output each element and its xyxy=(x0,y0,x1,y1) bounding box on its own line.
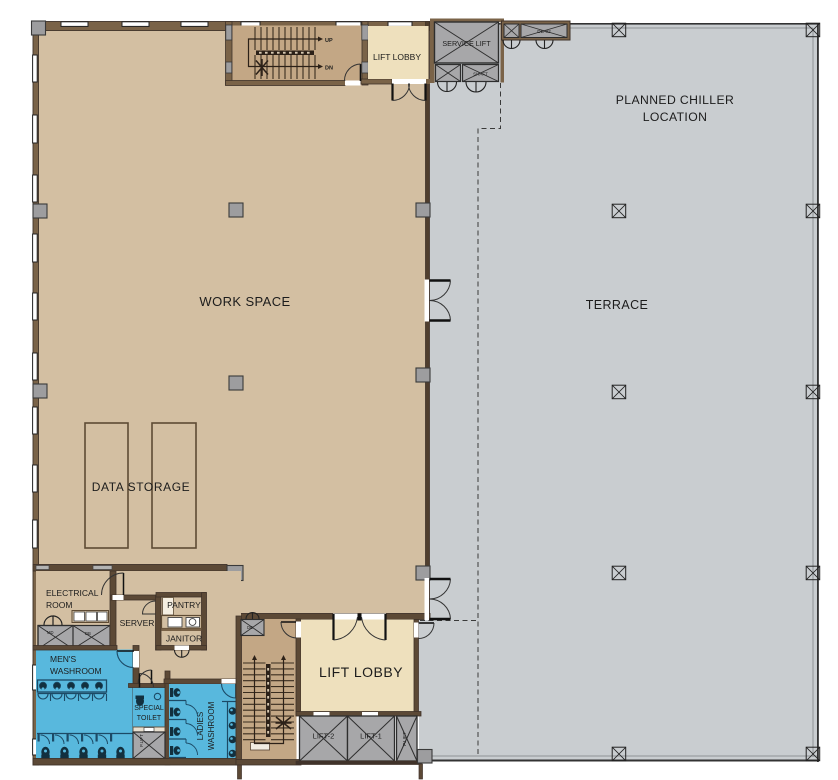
svg-text:LIFT-2: LIFT-2 xyxy=(313,732,335,741)
svg-text:DB: DB xyxy=(247,625,253,630)
svg-text:SHAFT: SHAFT xyxy=(473,72,488,77)
svg-text:LIFT LOBBY: LIFT LOBBY xyxy=(319,664,403,680)
svg-text:SERVICE LIFT: SERVICE LIFT xyxy=(442,39,491,48)
svg-text:ELECTRICAL: ELECTRICAL xyxy=(46,588,99,598)
svg-text:JANITOR: JANITOR xyxy=(166,634,202,644)
svg-text:LIFT-1: LIFT-1 xyxy=(360,732,382,741)
svg-text:MD: MD xyxy=(47,630,54,635)
svg-text:DATA STORAGE: DATA STORAGE xyxy=(92,480,191,494)
svg-text:PANTRY: PANTRY xyxy=(167,600,201,610)
svg-text:SERVER: SERVER xyxy=(120,618,155,628)
svg-text:TOILET: TOILET xyxy=(137,715,162,722)
svg-text:WORK SPACE: WORK SPACE xyxy=(199,294,290,309)
svg-text:WASHROOM: WASHROOM xyxy=(207,701,216,750)
svg-text:SPECIAL: SPECIAL xyxy=(134,705,164,712)
svg-text:LOCATION: LOCATION xyxy=(643,110,708,124)
svg-text:ROOM: ROOM xyxy=(46,600,72,610)
svg-text:DN: DN xyxy=(325,66,333,72)
svg-text:P.LIFT: P.LIFT xyxy=(402,732,408,746)
svg-text:TERRACE: TERRACE xyxy=(586,298,649,312)
svg-text:LIFT LOBBY: LIFT LOBBY xyxy=(373,52,421,62)
svg-text:PLANNED CHILLER: PLANNED CHILLER xyxy=(616,93,734,107)
svg-text:DB-02: DB-02 xyxy=(537,29,551,35)
svg-text:MEN'S: MEN'S xyxy=(50,654,77,664)
svg-text:P.LIFT: P.LIFT xyxy=(139,734,144,747)
svg-text:WASHROOM: WASHROOM xyxy=(50,666,102,676)
svg-text:DB: DB xyxy=(85,631,91,636)
svg-text:UP: UP xyxy=(325,38,333,44)
